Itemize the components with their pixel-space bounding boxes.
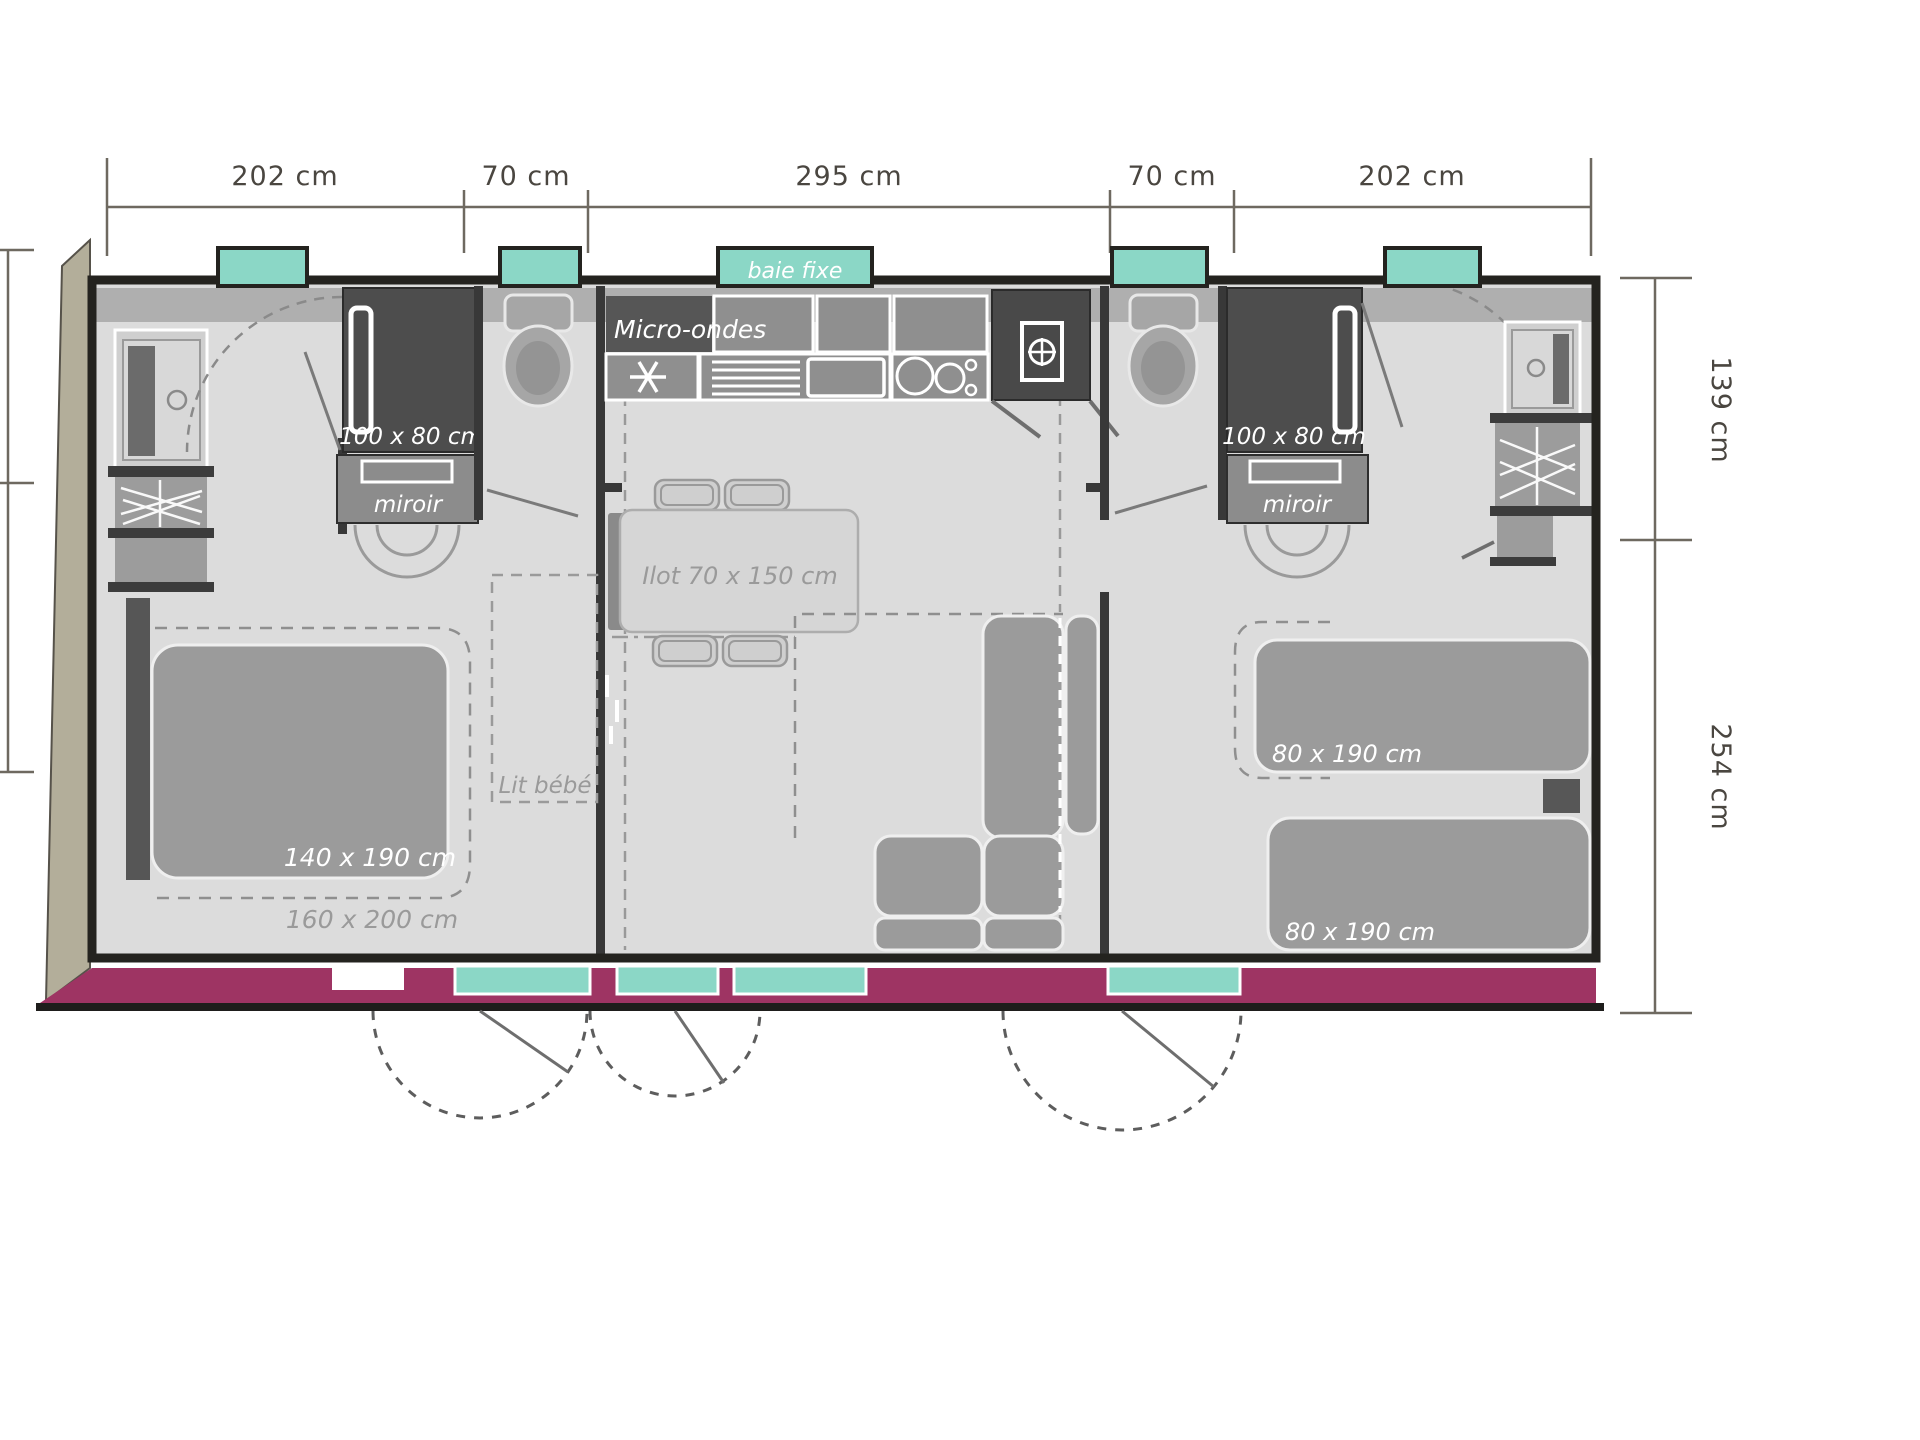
entry-door-swings <box>373 1011 1241 1130</box>
low-cabinet-left <box>115 538 207 584</box>
shelf-bar <box>108 528 214 538</box>
upper-cabinet-3 <box>894 296 987 352</box>
bay-window-label: baie fixe <box>748 259 843 284</box>
floorplan-page: 202 cm 70 cm 295 cm 70 cm 202 cm 139 cm … <box>0 0 1920 1440</box>
kitchen-left-wall <box>596 286 605 955</box>
glazed-door-4 <box>1108 966 1240 994</box>
glazed-door-2 <box>617 966 718 994</box>
shower-right-size-label: 100 x 80 cm <box>1222 424 1366 450</box>
window-wc-left <box>500 248 580 286</box>
single-bed-1-size-label: 80 x 190 cm <box>1272 740 1422 768</box>
upper-cabinet-2 <box>817 296 890 352</box>
vanity-left-mirror-label: miroir <box>374 492 444 518</box>
dim-top-70-right: 70 cm <box>1127 161 1216 192</box>
sink-counter <box>700 354 890 400</box>
microwave-label: Micro-ondes <box>614 315 766 344</box>
counter-bar <box>108 466 214 477</box>
headboard-left <box>126 598 150 880</box>
side-wall-bevel <box>46 240 90 1001</box>
bathroom-left-wall <box>474 286 483 520</box>
window-wc-right <box>1112 248 1207 286</box>
shelf-bar-2 <box>108 582 214 592</box>
wardrobe-right <box>1495 423 1580 508</box>
stool <box>653 636 717 666</box>
dim-top-202-left: 202 cm <box>231 161 338 192</box>
front-wall-baseline <box>36 1003 1604 1011</box>
washbasin-cabinet-right <box>1505 322 1580 415</box>
wardrobe-left <box>115 477 207 530</box>
dim-top-70-left: 70 cm <box>481 161 570 192</box>
front-glazed-doors <box>455 966 1240 994</box>
floorplan-drawing: 202 cm 70 cm 295 cm 70 cm 202 cm 139 cm … <box>0 0 1920 1440</box>
dimension-chain-left-cutoff <box>0 250 34 772</box>
water-heater-unit <box>992 290 1090 400</box>
wall-stub-left <box>596 483 622 492</box>
living-divider-wall <box>1100 592 1109 955</box>
dim-top-295: 295 cm <box>795 161 902 192</box>
shelf-bar-right-2 <box>1490 557 1556 566</box>
double-bed-alt-size-label: 160 x 200 cm <box>286 905 458 934</box>
island-label: Ilot 70 x 150 cm <box>642 562 837 590</box>
stool <box>655 480 719 510</box>
dimension-chain-right <box>1620 278 1692 1013</box>
shelf-bar-right <box>1490 506 1592 516</box>
vanity-right-mirror-label: miroir <box>1263 492 1333 518</box>
shower-left-size-label: 100 x 80 cm <box>339 424 483 450</box>
fridge <box>606 354 698 400</box>
wall-stub-right <box>1086 483 1109 492</box>
glazed-door-3 <box>734 966 866 994</box>
double-bed-size-label: 140 x 190 cm <box>284 843 456 872</box>
washbasin-cabinet-left <box>115 330 207 468</box>
dim-top-202-right: 202 cm <box>1358 161 1465 192</box>
nightstand-dark <box>1543 779 1580 813</box>
dim-right-139: 139 cm <box>1705 356 1736 463</box>
counter-bar-right <box>1490 413 1592 423</box>
dim-right-254: 254 cm <box>1705 723 1736 830</box>
low-cabinet-right <box>1497 516 1553 560</box>
stool <box>723 636 787 666</box>
stool <box>725 480 789 510</box>
toilet-right <box>1129 295 1197 406</box>
front-door-notch <box>332 968 404 990</box>
window-bedroom-left <box>218 248 307 286</box>
hob <box>892 354 988 400</box>
window-bedroom-right <box>1385 248 1480 286</box>
bathroom-right-wall <box>1218 286 1227 520</box>
crib-label: Lit bébé <box>498 773 591 799</box>
glazed-door-1 <box>455 966 590 994</box>
toilet-left <box>504 295 572 406</box>
single-bed-2-size-label: 80 x 190 cm <box>1285 918 1435 946</box>
